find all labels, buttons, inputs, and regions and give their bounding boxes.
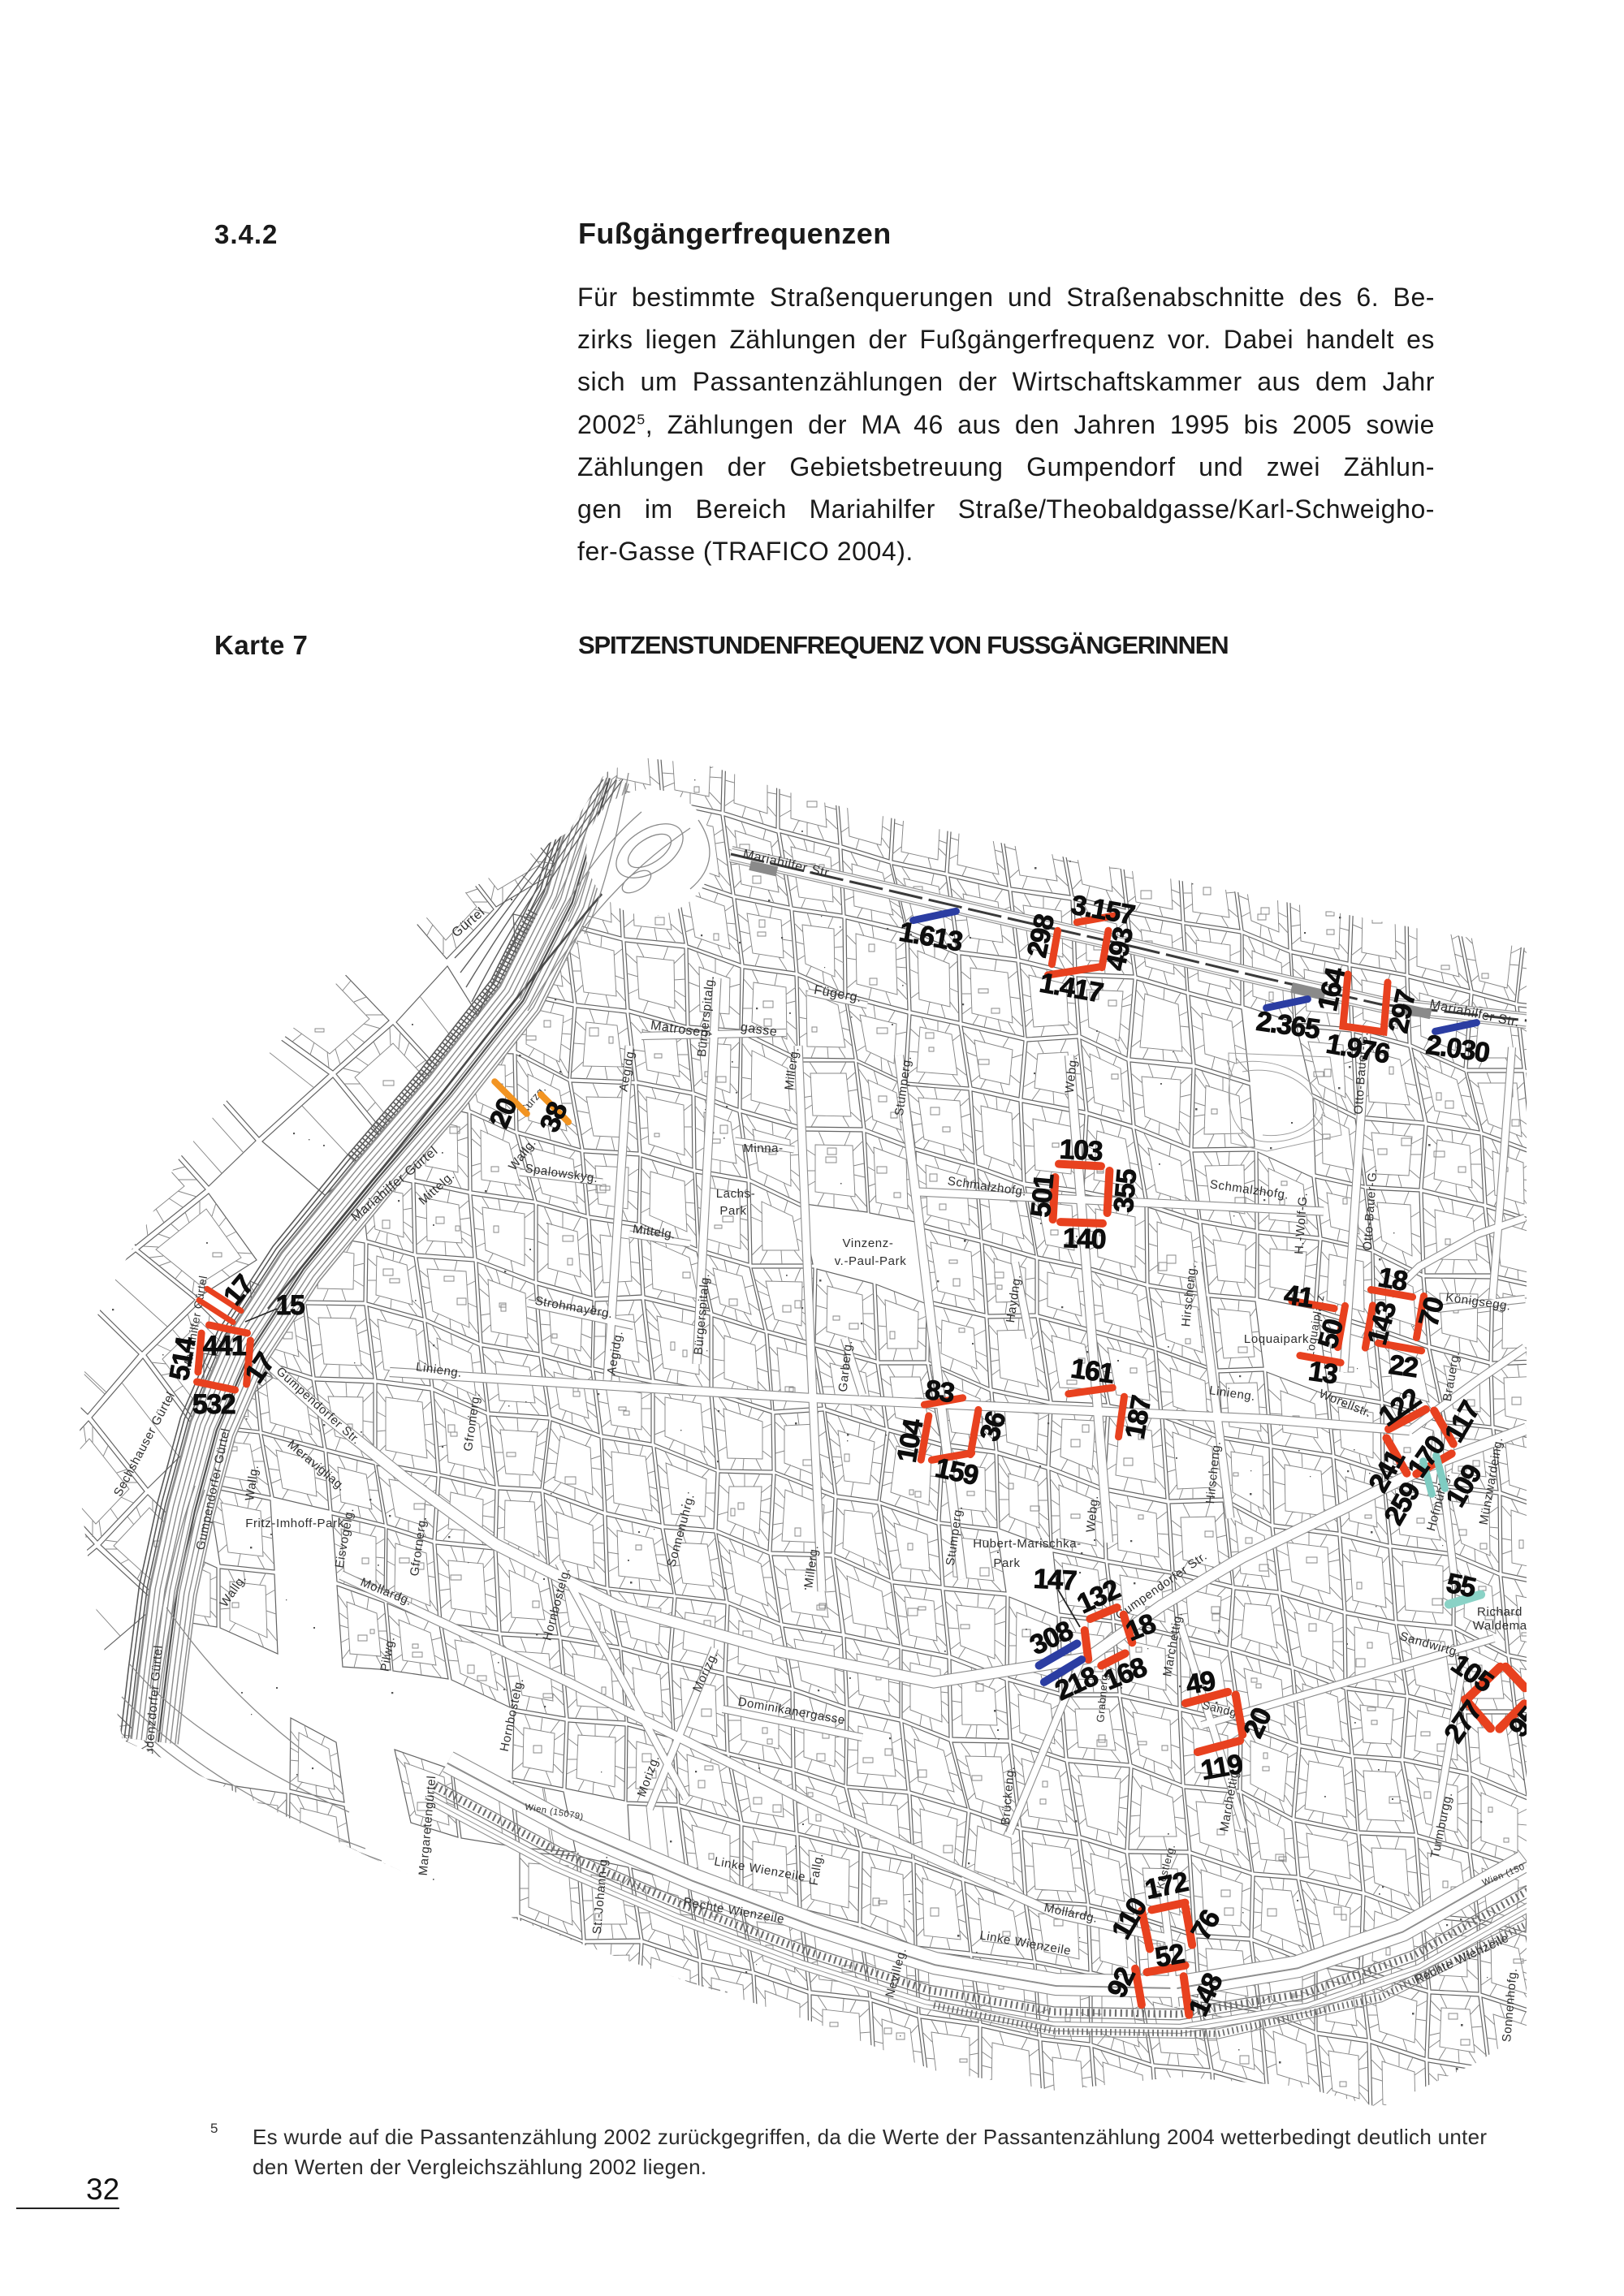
svg-text:Fritz-Imhoff-Park: Fritz-Imhoff-Park: [245, 1517, 344, 1530]
svg-text:52: 52: [1153, 1938, 1186, 1974]
svg-text:501: 501: [1026, 1173, 1060, 1219]
svg-text:147: 147: [1033, 1564, 1078, 1597]
svg-text:103: 103: [1059, 1134, 1104, 1167]
svg-text:Wien (15079): Wien (15079): [502, 1982, 562, 2000]
svg-text:355: 355: [1108, 1168, 1142, 1214]
svg-text:41: 41: [1282, 1280, 1315, 1314]
svg-text:Mariahilfer: Mariahilfer: [275, 929, 335, 982]
svg-text:Waldemar: Waldemar: [1473, 1619, 1532, 1633]
svg-text:15: 15: [276, 1290, 304, 1321]
svg-text:441: 441: [203, 1331, 246, 1362]
svg-text:83: 83: [923, 1375, 956, 1409]
svg-text:Hubert-Marischka-: Hubert-Marischka-: [973, 1537, 1082, 1551]
svg-text:Lachs-: Lachs-: [716, 1187, 756, 1201]
svg-text:Minna-: Minna-: [743, 1142, 783, 1155]
svg-text:532: 532: [192, 1389, 235, 1420]
svg-text:49: 49: [1184, 1665, 1217, 1701]
svg-text:Loquaipark: Loquaipark: [1244, 1332, 1309, 1346]
svg-text:Richard: Richard: [1477, 1605, 1522, 1619]
svg-text:140: 140: [1062, 1223, 1106, 1255]
svg-text:161: 161: [1069, 1353, 1116, 1390]
svg-text:Vinzenz-: Vinzenz-: [843, 1236, 894, 1250]
svg-text:v.-Paul-Park: v.-Paul-Park: [835, 1254, 907, 1268]
svg-text:18: 18: [1376, 1262, 1409, 1297]
svg-text:22: 22: [1387, 1349, 1419, 1384]
svg-text:Park: Park: [719, 1204, 746, 1218]
svg-text:13: 13: [1307, 1356, 1339, 1391]
svg-text:Park: Park: [993, 1556, 1020, 1570]
